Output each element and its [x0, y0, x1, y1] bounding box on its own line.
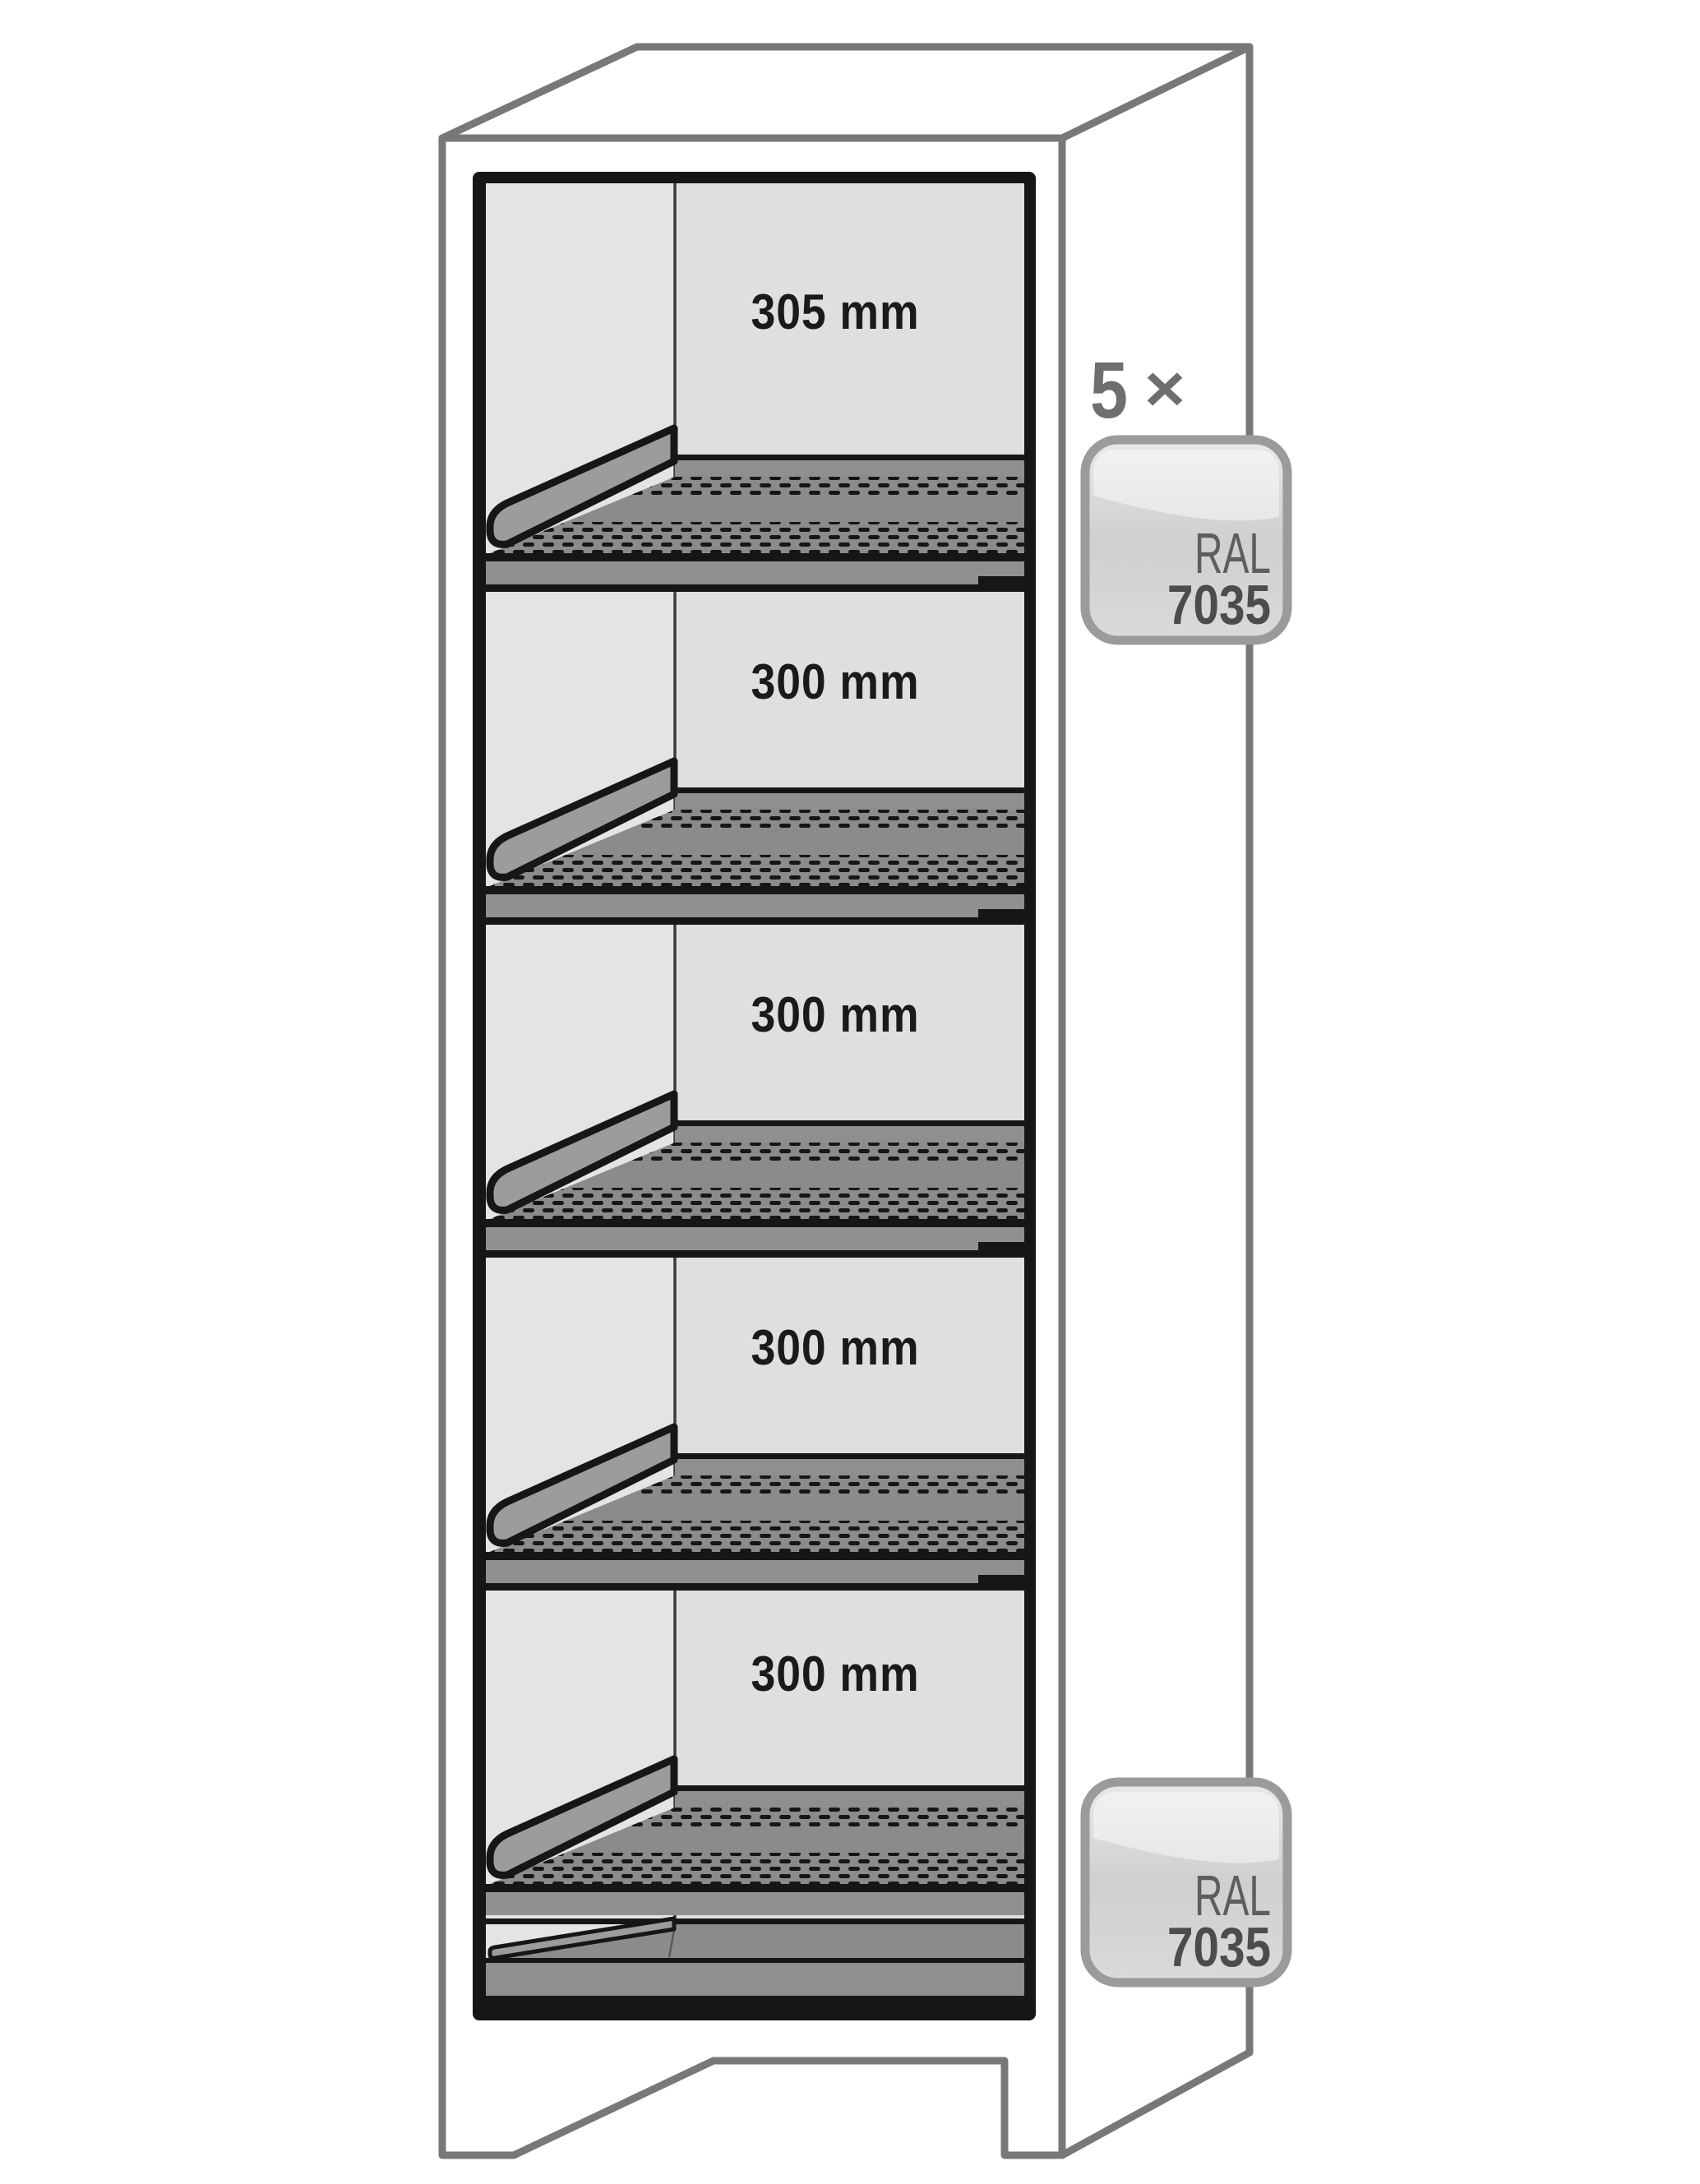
sump-front-fascia — [486, 1963, 1024, 1996]
shelf-perforation-front — [486, 1853, 1024, 1886]
shelf-front-fascia — [486, 1892, 1024, 1915]
shelf-perforation-front — [486, 855, 1024, 888]
ral-code-label: 7035 — [1167, 574, 1271, 636]
shelf-back-riser — [675, 460, 1024, 477]
shelf-back-riser — [675, 1459, 1024, 1475]
shelf-front-fascia — [486, 1560, 1024, 1583]
shelf-front-fascia — [486, 1227, 1024, 1250]
shelf-perforation-front — [486, 522, 1024, 555]
cabinet-diagram-canvas: 305 mm300 mm300 mm300 mm300 mm 5 × RAL70… — [0, 0, 1700, 2184]
shelf-front-edge — [486, 1552, 1024, 1560]
compartment-height-label: 305 mm — [751, 284, 920, 339]
compartment-height-label: 300 mm — [751, 1646, 920, 1701]
shelf-perforation-front — [486, 1188, 1024, 1221]
quantity-count-text: 5 — [1090, 345, 1128, 435]
compartment-separator — [486, 917, 1024, 925]
cabinet-interior — [473, 172, 1036, 2020]
compartment-separator — [486, 584, 1024, 592]
safety-cabinet-diagram: 305 mm300 mm300 mm300 mm300 mm 5 × RAL70… — [0, 0, 1700, 2184]
compartment-separator — [486, 1583, 1024, 1591]
shelf-back-edge — [675, 1453, 1024, 1459]
shelf-perforation-front — [486, 1521, 1024, 1554]
shelf-back-edge — [675, 1120, 1024, 1126]
shelf-front-edge — [486, 553, 1024, 561]
compartment-separator — [486, 1250, 1024, 1258]
ral-7035-swatch-badge: RAL7035 — [1085, 1782, 1287, 1983]
shelf-back-edge — [675, 455, 1024, 460]
shelf-front-edge — [486, 1219, 1024, 1227]
ral-code-label: 7035 — [1167, 1916, 1271, 1979]
shelf-front-fascia — [486, 561, 1024, 584]
compartment-height-label: 300 mm — [751, 1320, 920, 1375]
shelf-back-riser — [675, 1126, 1024, 1143]
shelf-back-edge — [675, 787, 1024, 793]
quantity-times-icon: × — [1144, 352, 1185, 425]
compartment-height-label: 300 mm — [751, 654, 920, 709]
shelf-back-riser — [675, 793, 1024, 810]
shelf-front-edge — [486, 1884, 1024, 1892]
shelf-back-riser — [675, 1791, 1024, 1808]
ral-7035-swatch-badge: RAL7035 — [1085, 440, 1287, 640]
shelf-front-edge — [486, 886, 1024, 894]
shelf-front-fascia — [486, 894, 1024, 917]
sump-front-edge — [486, 1958, 1024, 1963]
compartment-height-label: 300 mm — [751, 987, 920, 1042]
sump-back-edge — [486, 1919, 1024, 1924]
shelf-back-edge — [675, 1785, 1024, 1791]
